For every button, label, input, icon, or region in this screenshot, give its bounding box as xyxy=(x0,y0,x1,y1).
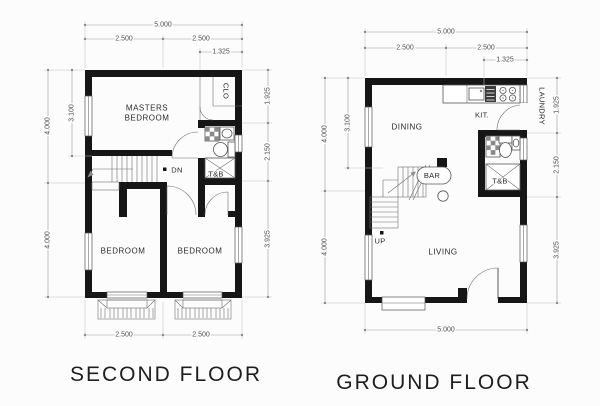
toilet-bowl xyxy=(214,143,228,157)
dim-bottom-left: 2.500 xyxy=(115,332,133,339)
bedroom-left-label: BEDROOM xyxy=(101,247,146,256)
stairs-up-label: UP xyxy=(374,237,385,246)
closet-door-arc xyxy=(200,107,213,120)
dim-right-mid: 2.150 xyxy=(554,156,561,174)
dim-left-lower: 4.000 xyxy=(45,231,52,249)
dim-left-inner: 3.100 xyxy=(345,114,352,132)
bar-stool xyxy=(438,191,448,201)
dim-top-left: 2.500 xyxy=(115,36,133,43)
entrance-opening xyxy=(467,297,498,303)
kitchen-sink xyxy=(469,88,484,100)
ground-floor-title: GROUND FLOOR xyxy=(336,371,532,394)
ground-floor-walls xyxy=(365,78,527,303)
closet-label: CLO xyxy=(222,83,231,99)
masters-bedroom-label-line1: MASTERS xyxy=(126,104,168,113)
bar-post xyxy=(437,158,447,167)
dining-label: DINING xyxy=(392,123,423,132)
dim-top-total: 5.000 xyxy=(437,29,455,36)
dim-left-upper: 4.000 xyxy=(45,117,52,135)
dim-right-top: 1.925 xyxy=(265,87,272,105)
bedroom-right-door-arc xyxy=(205,192,228,215)
ground-floor-plan: 5.000 2.500 2.500 1.325 4.000 4.000 3.10… xyxy=(321,28,561,334)
dim-bottom-right: 2.500 xyxy=(192,332,210,339)
dim-left-inner: 3.100 xyxy=(69,104,76,122)
kitchen-grill xyxy=(485,86,496,102)
floor-plans-canvas: 5.000 2.500 2.500 1.325 4.000 4.000 3.10… xyxy=(0,0,600,406)
dim-right-bottom: 3.925 xyxy=(554,241,561,259)
planter-box-right xyxy=(175,300,231,319)
stair-label-bullet xyxy=(163,168,167,172)
stairs-down-label: DN xyxy=(171,165,182,174)
entrance-door xyxy=(467,268,498,299)
second-floor-title: SECOND FLOOR xyxy=(70,363,262,386)
kitchen-counter xyxy=(443,85,520,103)
dim-top-total: 5.000 xyxy=(154,22,172,29)
laundry-door-arc xyxy=(497,105,520,130)
dim-top-right: 2.500 xyxy=(192,36,210,43)
dim-right-bottom: 3.925 xyxy=(265,230,272,248)
dim-top-sub: 1.325 xyxy=(496,57,514,64)
planter-box-left xyxy=(98,300,155,319)
kitchen-label: KIT. xyxy=(475,111,489,120)
dim-right-top: 1.925 xyxy=(554,96,561,114)
second-floor-plan: 5.000 2.500 2.500 1.325 4.000 4.000 3.10… xyxy=(44,21,272,339)
living-label: LIVING xyxy=(428,248,457,257)
dim-top-right: 2.500 xyxy=(477,45,495,52)
dim-top-left: 2.500 xyxy=(396,45,414,52)
dim-bottom-total: 5.000 xyxy=(437,327,455,334)
floor-plan-sheet: 5.000 2.500 2.500 1.325 4.000 4.000 3.10… xyxy=(0,0,600,406)
bedroom-left-door-arc xyxy=(167,186,196,215)
toilet-tank xyxy=(228,142,235,157)
bedroom-right-label: BEDROOM xyxy=(178,247,223,256)
toilet-tank xyxy=(499,136,512,143)
dim-left-lower: 4.000 xyxy=(322,238,329,256)
masters-bedroom-label-line2: BEDROOM xyxy=(125,114,170,123)
bar-label: BAR xyxy=(424,171,441,180)
stair-direction-arrow xyxy=(90,169,134,175)
dim-left-upper: 4.000 xyxy=(322,125,329,143)
toilet-bowl xyxy=(500,143,512,158)
laundry-label: LAUNDRY xyxy=(538,87,547,125)
stair-label-bullet xyxy=(380,231,384,235)
toilet-door-arc xyxy=(172,132,198,158)
dim-right-mid: 2.150 xyxy=(265,143,272,161)
dim-top-sub: 1.325 xyxy=(212,49,230,56)
toilet-bath-label: T&B xyxy=(492,177,508,186)
toilet-bath-label: T&B xyxy=(208,170,224,179)
laundry-door-opening xyxy=(520,103,527,130)
stair-direction-arrow xyxy=(388,173,414,193)
